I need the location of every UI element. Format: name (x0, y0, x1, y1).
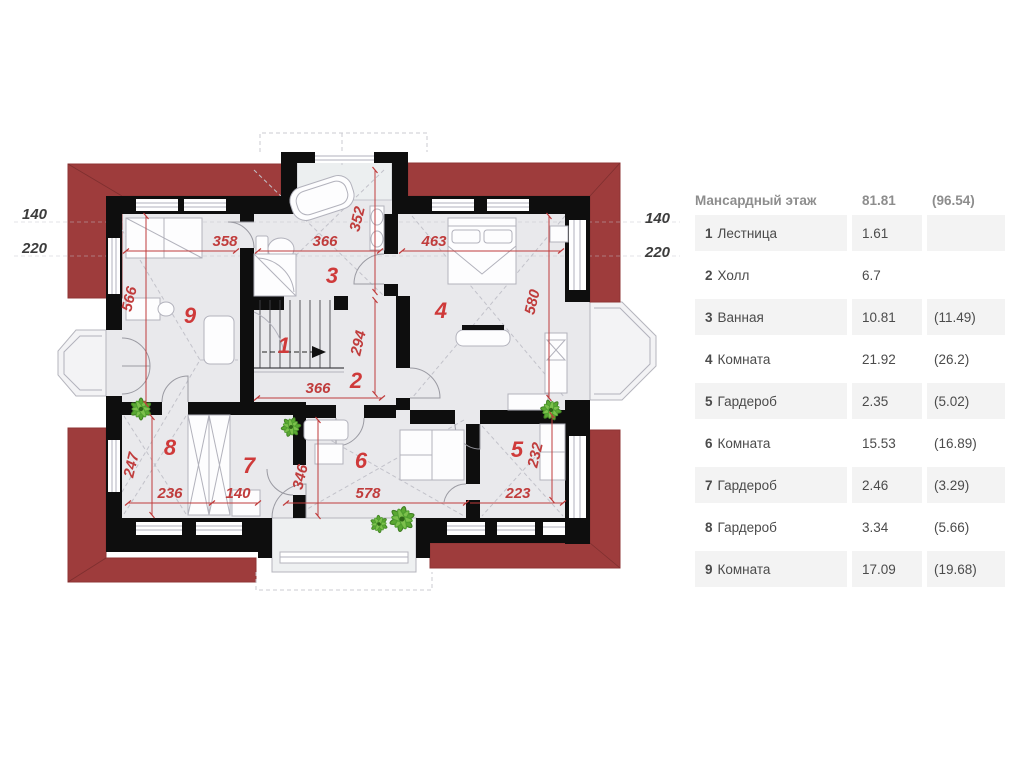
room-area: 15.53 (852, 425, 922, 461)
table-row: 3Ванная 10.81 (11.49) (695, 299, 1004, 335)
room-index: 4 (705, 352, 713, 367)
crib-room6 (304, 420, 348, 440)
room-number-4: 4 (434, 298, 447, 323)
room-area: 2.46 (852, 467, 922, 503)
room-area-full: (19.68) (927, 551, 1005, 587)
shower (254, 254, 296, 296)
room-index: 8 (705, 520, 713, 535)
room-name: Гардероб (718, 520, 777, 535)
desk-room6 (315, 444, 343, 464)
room-area: 6.7 (852, 257, 922, 293)
room-index: 5 (705, 394, 713, 409)
dim-label: 366 (312, 233, 338, 250)
room-name: Комната (718, 352, 771, 367)
room-area-full: (16.89) (927, 425, 1005, 461)
room-number-2: 2 (349, 368, 363, 393)
room-name: Холл (718, 268, 750, 283)
area-table-header: Мансардный этаж 81.81 (96.54) (695, 193, 1004, 215)
wardrobe-room9 (126, 218, 202, 258)
room-index: 1 (705, 226, 713, 241)
table-row: 4Комната 21.92 (26.2) (695, 341, 1004, 377)
screenshot: 358 366 352 463 566 580 294 366 247 236 … (0, 0, 1024, 768)
room-number-9: 9 (184, 303, 197, 328)
side-dim-right-220: 220 (644, 244, 671, 261)
sofa-room9 (204, 316, 234, 364)
floor-total-area-full: (96.54) (925, 193, 1004, 208)
room-name: Комната (718, 436, 771, 451)
floor-total-area: 81.81 (852, 193, 925, 208)
side-dim-left-140: 140 (22, 206, 48, 223)
side-dim-right-140: 140 (645, 210, 671, 227)
table-row: 8Гардероб 3.34 (5.66) (695, 509, 1004, 545)
table-row: 5Гардероб 2.35 (5.02) (695, 383, 1004, 419)
table-row: 2Холл 6.7 (695, 257, 1004, 293)
nightstand-room4 (550, 226, 568, 242)
room-index: 7 (705, 478, 713, 493)
dim-label: 366 (305, 380, 331, 397)
room-number-6: 6 (355, 448, 368, 473)
room-area: 2.35 (852, 383, 922, 419)
floor-title: Мансардный этаж (695, 193, 852, 208)
room-area-full: (5.66) (927, 509, 1005, 545)
room-name: Лестница (718, 226, 778, 241)
room-area-full: (3.29) (927, 467, 1005, 503)
room-name: Ванная (718, 310, 764, 325)
room-area: 3.34 (852, 509, 922, 545)
room-area-full: (5.02) (927, 383, 1005, 419)
room-area-full: (26.2) (927, 341, 1005, 377)
dim-label: 578 (355, 485, 381, 502)
room-number-3: 3 (326, 263, 338, 288)
room-area: 17.09 (852, 551, 922, 587)
room-area: 21.92 (852, 341, 922, 377)
table-row: 9Комната 17.09 (19.68) (695, 551, 1004, 587)
room-index: 3 (705, 310, 713, 325)
closet-room4 (545, 333, 567, 393)
room-index: 9 (705, 562, 713, 577)
dim-label: 223 (504, 485, 531, 502)
room-name: Гардероб (718, 478, 777, 493)
table-row: 6Комната 15.53 (16.89) (695, 425, 1004, 461)
wardrobe-rooms7-8 (188, 415, 230, 515)
room-area: 10.81 (852, 299, 922, 335)
room-number-5: 5 (511, 437, 524, 462)
table-row: 1Лестница 1.61 (695, 215, 1004, 251)
room-name: Гардероб (718, 394, 777, 409)
table-row: 7Гардероб 2.46 (3.29) (695, 467, 1004, 503)
room-number-7: 7 (243, 453, 257, 478)
dim-label: 140 (225, 485, 251, 502)
sink (370, 206, 384, 250)
floor-plan: 358 366 352 463 566 580 294 366 247 236 … (0, 0, 695, 768)
tv-dresser-room4 (456, 325, 510, 346)
dim-label: 236 (156, 485, 183, 502)
room-number-8: 8 (164, 435, 177, 460)
wardrobe-room6 (400, 430, 464, 480)
room-index: 6 (705, 436, 713, 451)
room-area-full (927, 215, 1005, 251)
side-dim-left-220: 220 (21, 240, 48, 257)
room-index: 2 (705, 268, 713, 283)
room-name: Комната (718, 562, 771, 577)
area-table: Мансардный этаж 81.81 (96.54) 1Лестница … (695, 193, 1004, 593)
dim-label: 463 (420, 233, 447, 250)
dim-label: 358 (212, 233, 238, 250)
room-area-full (927, 257, 1005, 293)
room-area: 1.61 (852, 215, 922, 251)
room-area-full: (11.49) (927, 299, 1005, 335)
room-number-1: 1 (278, 333, 290, 358)
